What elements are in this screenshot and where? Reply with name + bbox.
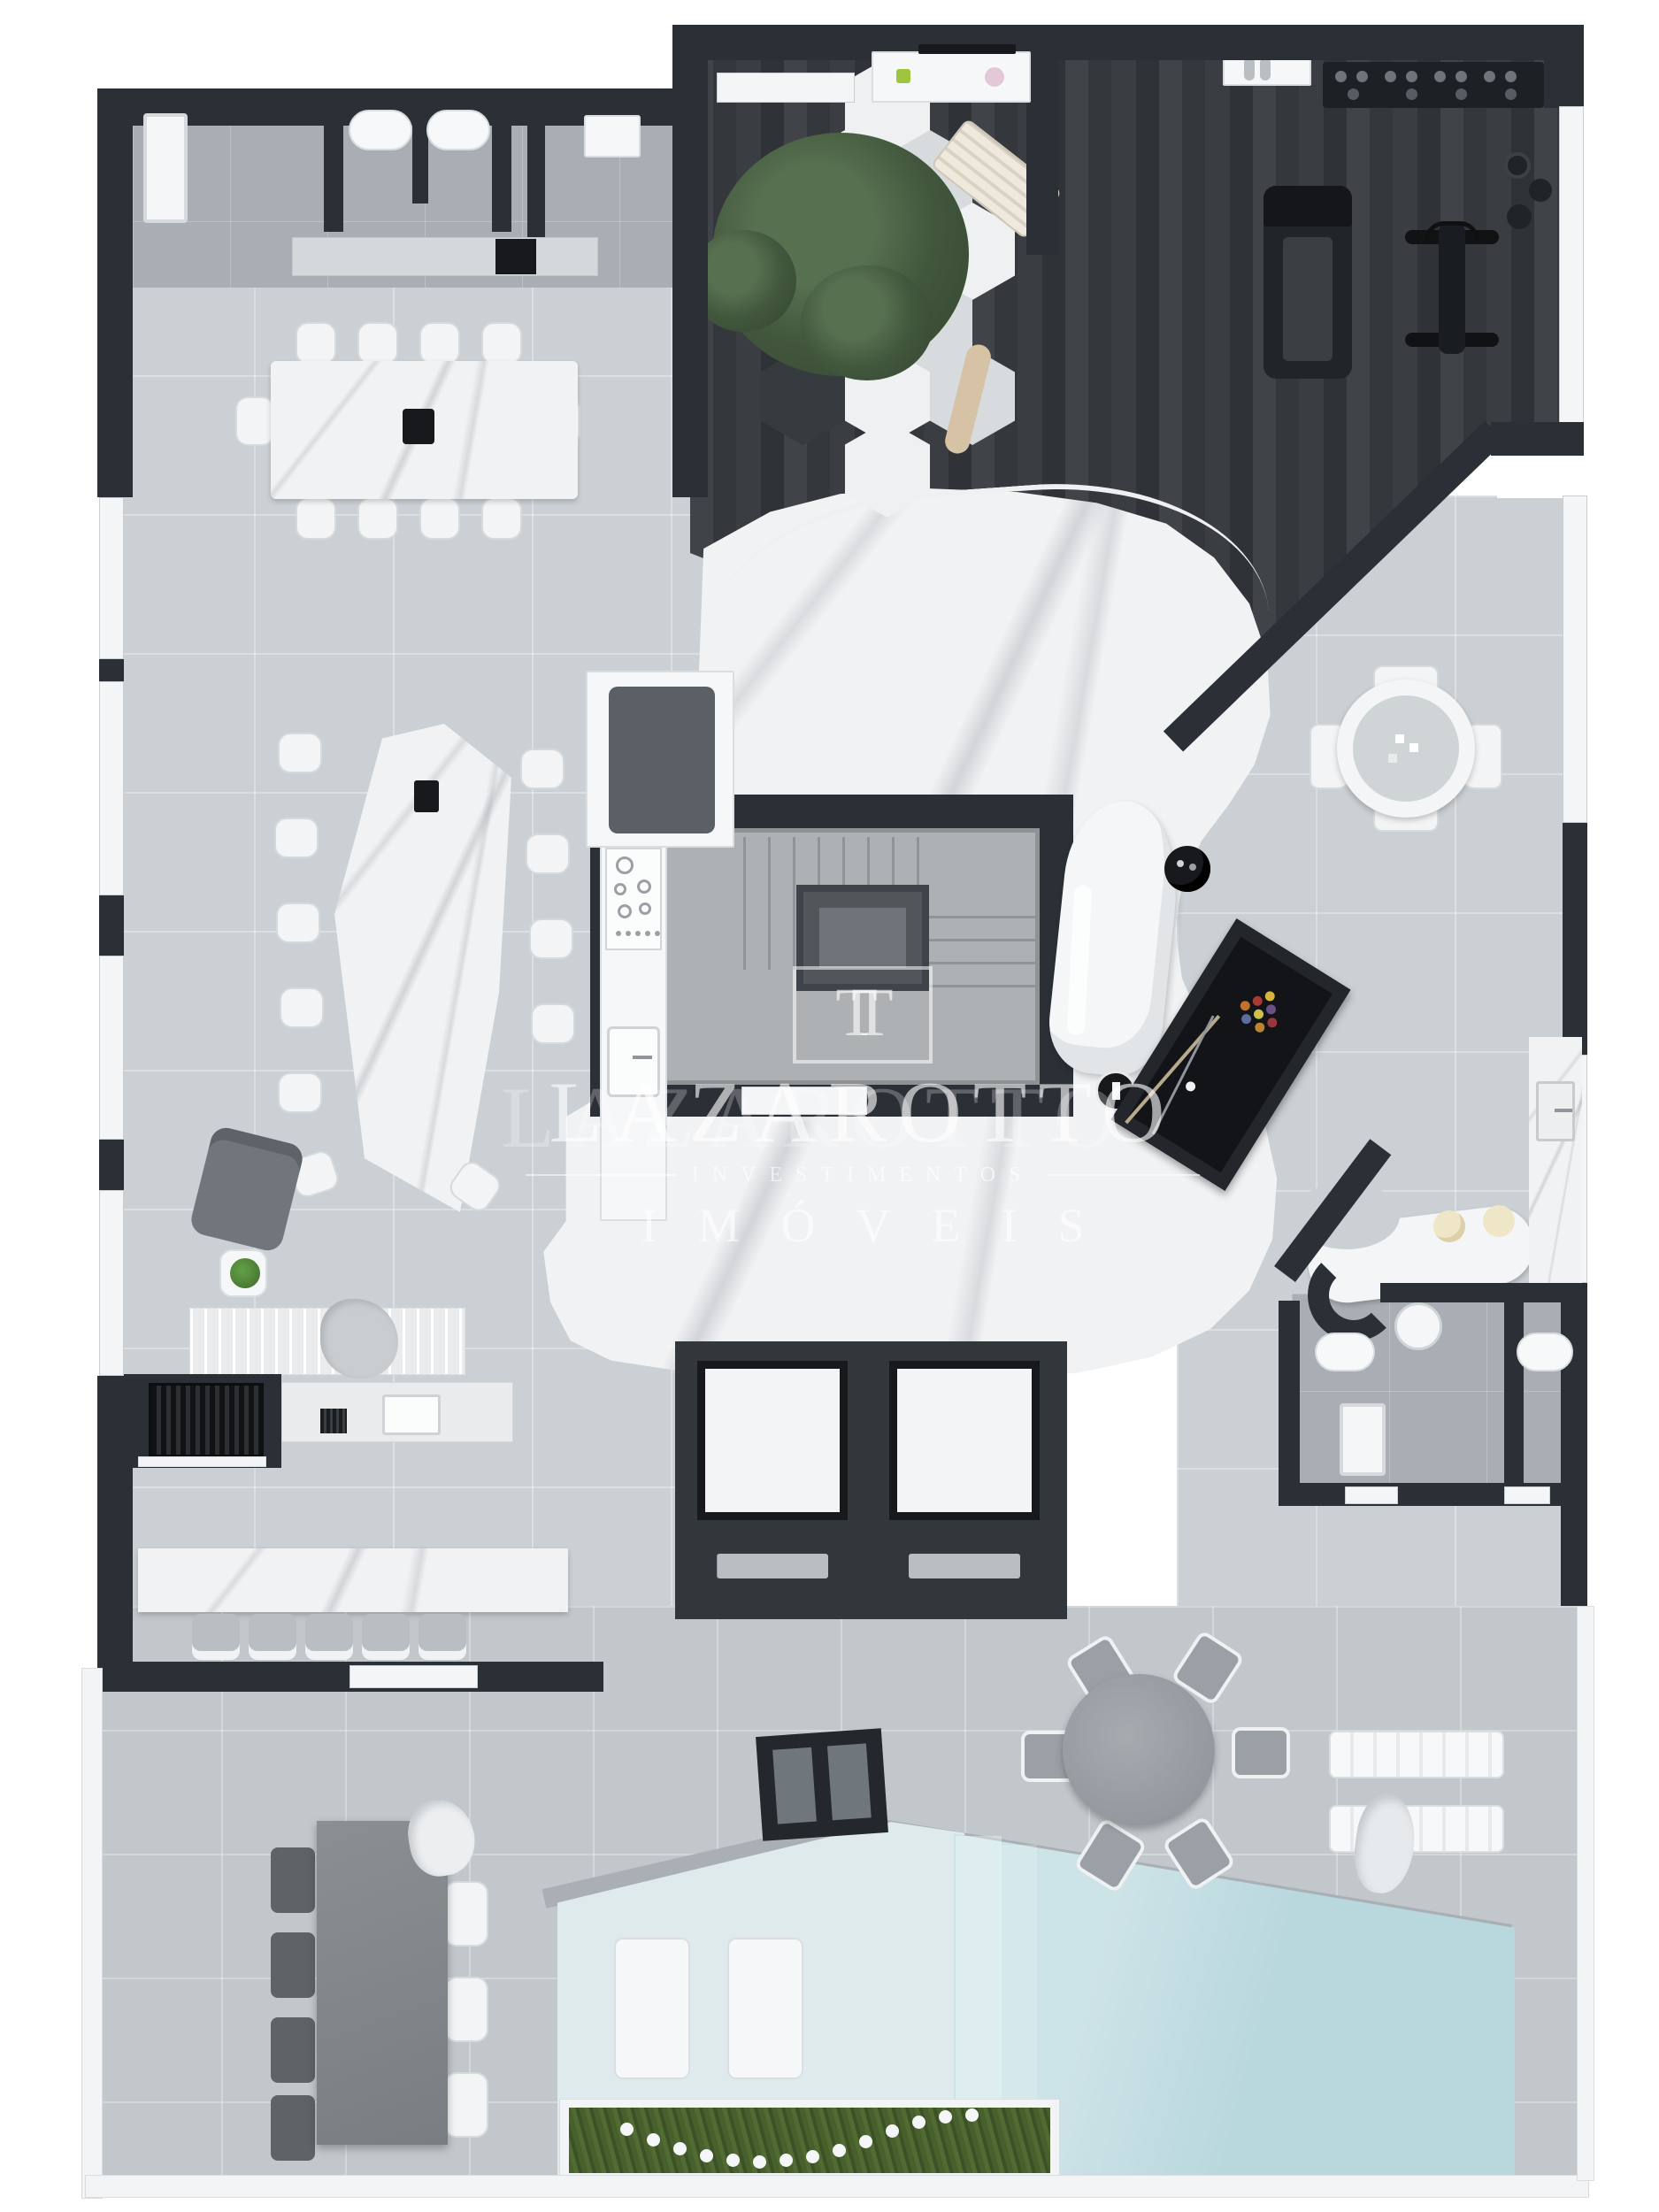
stall-partition [412, 126, 428, 204]
wall [1561, 1283, 1587, 1606]
treadmill [1263, 186, 1352, 379]
dumbbells [1335, 71, 1347, 82]
table-centerpiece [403, 409, 434, 444]
lounge-chair [529, 918, 573, 959]
wall [1491, 422, 1584, 456]
built-in-grill [149, 1383, 264, 1457]
planter-grass [569, 2108, 1050, 2173]
lounge-chair [274, 818, 319, 858]
ball-triangle [1263, 989, 1277, 1002]
decor-shelf [872, 51, 1031, 103]
white-chair [444, 1881, 488, 1947]
stair-door [741, 1087, 867, 1115]
elevator-cab [697, 1361, 848, 1520]
grill-shelf [138, 1456, 266, 1467]
bar-stool [305, 1614, 353, 1660]
outer-wall-left [81, 1668, 103, 2199]
decor-green [896, 69, 910, 83]
bar-stool [192, 1614, 240, 1660]
weight-plates [1504, 152, 1531, 179]
lounge-chair [278, 733, 322, 773]
burner [616, 856, 634, 874]
gym-glazing [1559, 106, 1584, 435]
door-threshold [1345, 1486, 1398, 1504]
lounge-chair [531, 1003, 575, 1044]
terrace-railing-bottom [85, 2175, 1589, 2198]
toilet [349, 110, 412, 150]
wall [1279, 1301, 1300, 1506]
kitchen-sink [607, 1026, 660, 1097]
dining-chair [296, 322, 336, 365]
dining-chair [481, 497, 522, 540]
white-chair [444, 2072, 488, 2138]
dark-chair [271, 1932, 315, 1998]
stair-landing [819, 908, 906, 968]
elevator-doors [909, 1554, 1020, 1578]
pool-lounger [614, 1938, 690, 2079]
wall-pier [99, 1140, 124, 1190]
bar-stool [249, 1614, 296, 1660]
burner [614, 883, 626, 895]
lounge-chair [280, 987, 324, 1028]
toilet [1517, 1333, 1573, 1371]
window [1563, 495, 1587, 823]
burner [618, 904, 632, 918]
round-side-table [1164, 846, 1210, 892]
elevator-doors [717, 1554, 828, 1578]
kitchen-niche [586, 671, 734, 848]
burner [639, 902, 651, 915]
counter-sink [1536, 1081, 1575, 1141]
tray-glyph [1112, 1082, 1120, 1100]
bar-stool-cream [1433, 1210, 1465, 1242]
dining-chair [419, 322, 460, 365]
floor-plan-rendering: TT LAZAROTTO INVESTIMENTOS IMÓVEIS [0, 0, 1659, 2212]
plant [230, 1258, 260, 1288]
elevator-block [675, 1341, 1067, 1619]
wall [1504, 1301, 1524, 1506]
wall-pier [1563, 823, 1587, 1055]
faucet [633, 1056, 652, 1059]
black-cosmetics-tray [495, 239, 536, 274]
bar-counter [138, 1548, 568, 1612]
exercise-bike [1405, 223, 1499, 354]
dining-chair [419, 497, 460, 540]
string-lights [620, 2123, 634, 2136]
decor-flowers [985, 67, 1004, 87]
faucet [1555, 1109, 1572, 1112]
dumbbell-rack [1323, 62, 1544, 108]
stall-partition [324, 126, 343, 232]
wall [1380, 1283, 1586, 1302]
L-counter [1529, 1037, 1582, 1294]
pane [827, 1743, 872, 1820]
vanity-counter [292, 237, 598, 276]
planter-box [559, 2099, 1060, 2184]
tv-bar [918, 44, 1016, 54]
balcony-notch [1497, 456, 1584, 498]
window [99, 956, 124, 1140]
window [99, 681, 124, 895]
window [99, 497, 124, 659]
bar-stool [419, 1614, 466, 1660]
table-glass-top [1353, 695, 1459, 802]
counter-grill [320, 1409, 347, 1433]
door-threshold [349, 1665, 478, 1688]
cue-ball [1184, 1079, 1197, 1093]
pool-dark-wall [756, 1728, 888, 1841]
terrace-round-table [1063, 1674, 1215, 1826]
bike-handles [1425, 221, 1479, 241]
terrace-chair [1232, 1727, 1290, 1778]
stair-treads [925, 912, 1035, 987]
plant-side-table [219, 1249, 267, 1297]
lounge-chair [520, 749, 565, 789]
window [99, 1190, 124, 1376]
stair-interior [624, 828, 1040, 1085]
bike-body [1439, 223, 1465, 354]
wall [672, 25, 708, 497]
treadmill-belt [1283, 237, 1333, 361]
elevator-cab [889, 1361, 1040, 1520]
pool-lounger [727, 1938, 803, 2079]
dining-chair [296, 497, 336, 540]
wall [1026, 25, 1058, 255]
dark-chair [271, 1847, 315, 1913]
treadmill-console [1263, 186, 1352, 227]
sneakers [1244, 58, 1255, 81]
decor-dots [1177, 860, 1184, 867]
lounge-chair [276, 902, 320, 943]
wall-pier [99, 895, 124, 956]
wall [97, 88, 133, 497]
toilet [1315, 1333, 1375, 1371]
pane [772, 1747, 817, 1824]
sliding-door [717, 73, 855, 103]
tabletop-decor [1395, 734, 1404, 743]
shower-tray [1340, 1403, 1386, 1476]
round-white-table [1337, 680, 1475, 818]
knobs [616, 931, 621, 936]
stair-void [796, 885, 929, 991]
table-mixer [414, 780, 439, 812]
toilet [426, 110, 490, 150]
dining-chair [357, 497, 398, 540]
tree-crown-blob [801, 265, 933, 380]
curved-wall [1308, 1249, 1400, 1341]
door-threshold [1504, 1486, 1550, 1504]
wall [690, 25, 1584, 60]
white-chair [444, 1977, 488, 2042]
laundry-sink [584, 115, 641, 157]
lounge-chair [526, 833, 570, 874]
dark-chair [271, 2095, 315, 2161]
terrace-railing-right [1577, 1606, 1594, 2181]
wall [1544, 25, 1584, 108]
shower-tray [143, 113, 188, 223]
stall-partition [492, 126, 511, 232]
tall-cabinet [609, 687, 715, 833]
round-sink [1394, 1302, 1442, 1350]
dining-chair [235, 396, 274, 446]
wall-pier [99, 659, 124, 681]
dining-chair [357, 322, 398, 365]
sun-lounger [1329, 1731, 1504, 1778]
cooktop [605, 848, 662, 950]
lounge-chair [278, 1072, 322, 1113]
burner [637, 879, 651, 894]
bar-stool [362, 1614, 410, 1660]
dining-chair [481, 322, 522, 365]
dark-chair [271, 2017, 315, 2083]
gourmet-sink [382, 1394, 441, 1435]
